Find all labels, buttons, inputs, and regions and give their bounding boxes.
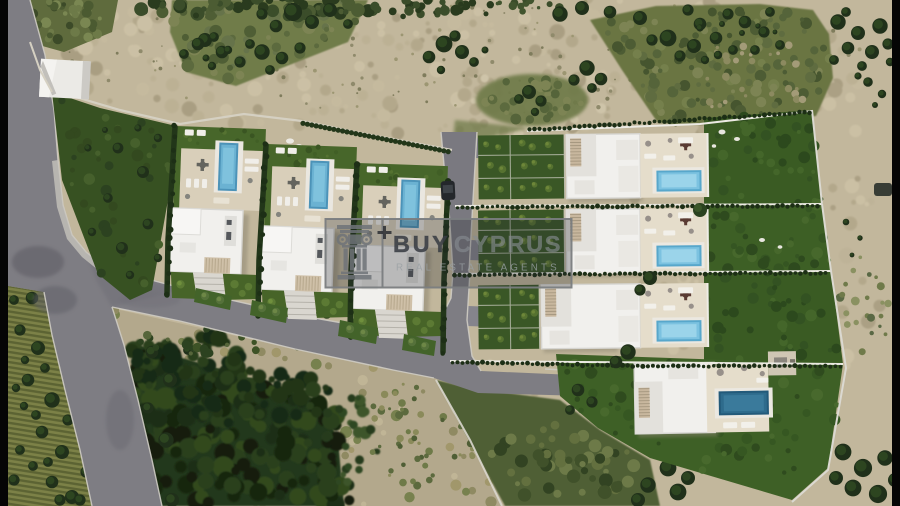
svg-text:CYPRUS: CYPRUS: [454, 231, 562, 257]
svg-text:REAL ESTATE AGENTS: REAL ESTATE AGENTS: [396, 263, 560, 274]
svg-text:BUY: BUY: [393, 231, 450, 257]
